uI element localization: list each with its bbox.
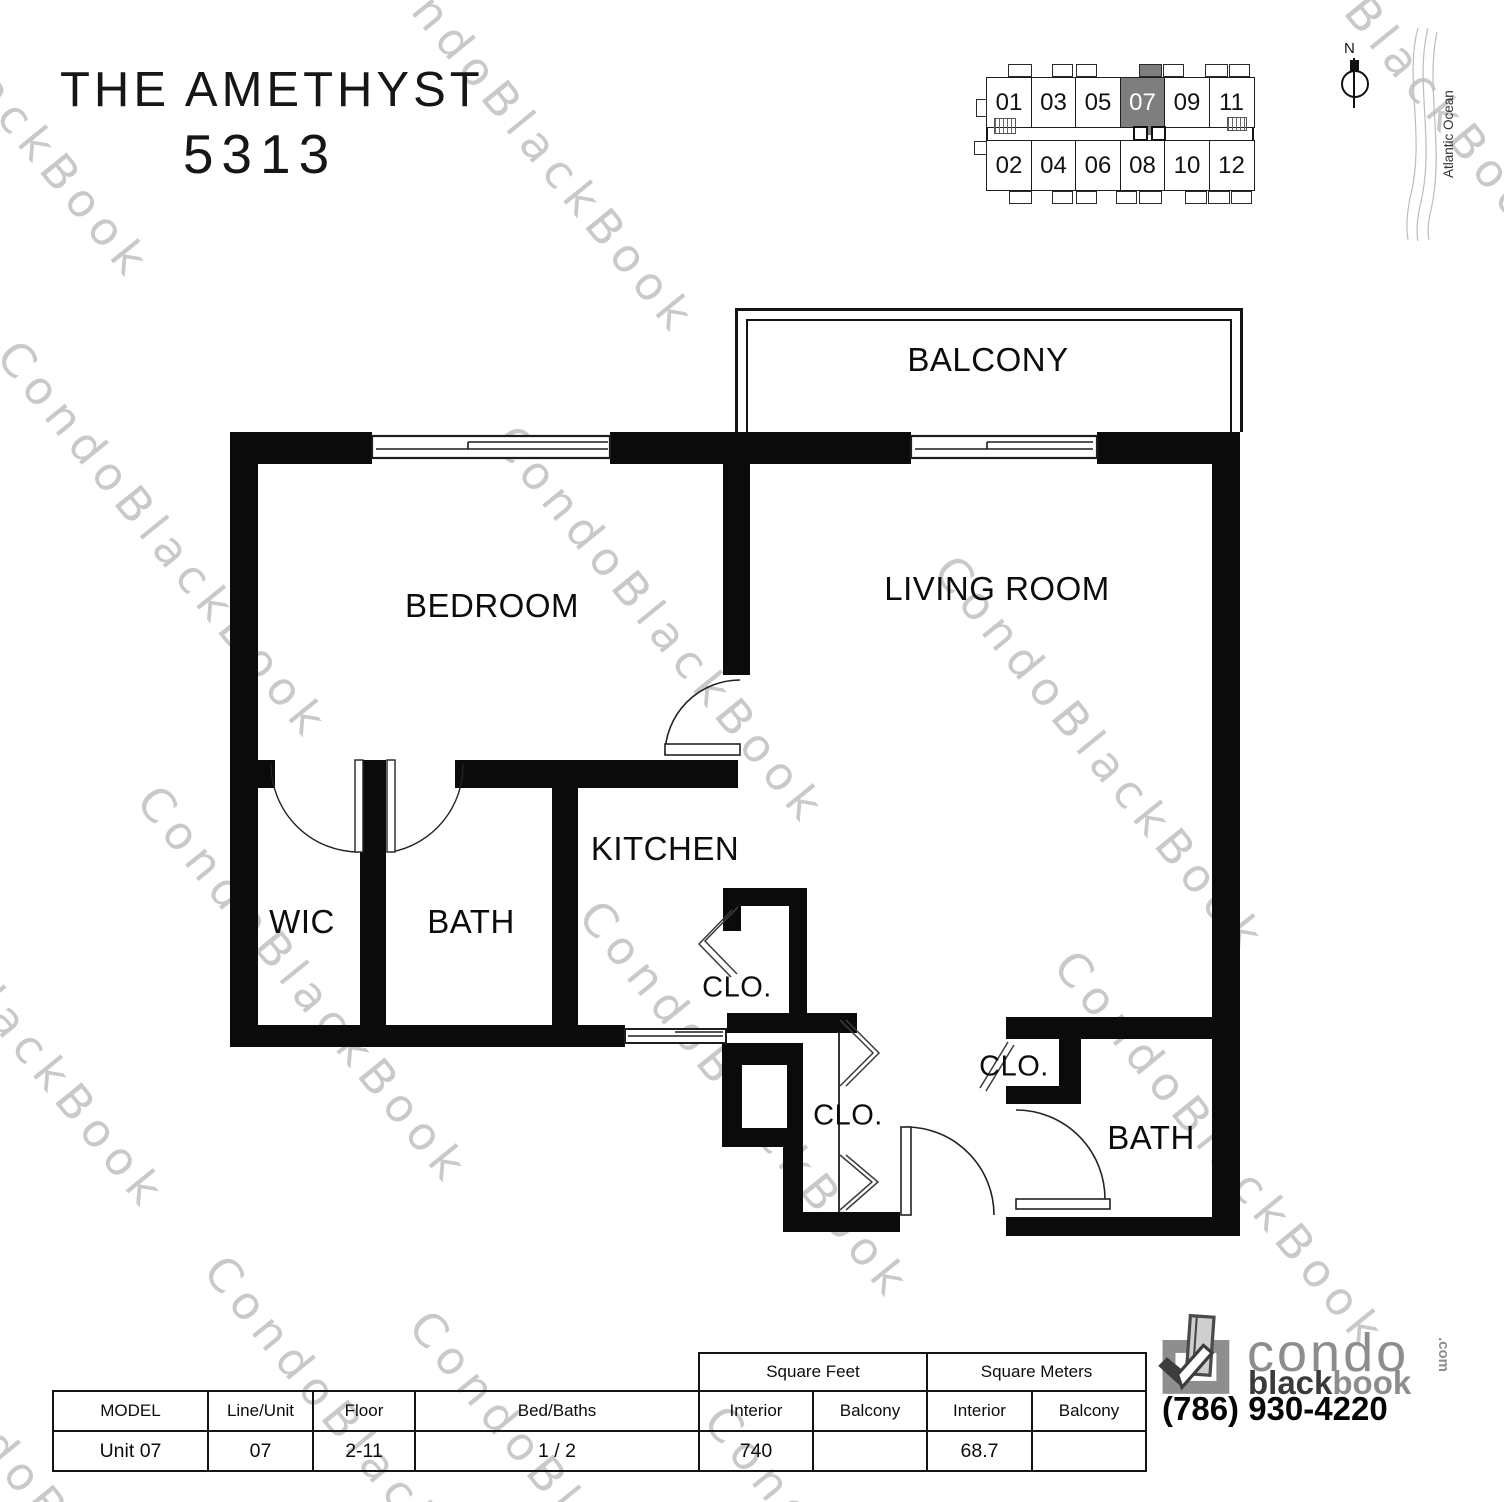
- table-group-header-row: Square Feet Square Meters: [53, 1353, 1146, 1391]
- window-kitchen: [625, 1029, 726, 1043]
- door-arc-wic: [271, 764, 359, 852]
- floor-plan: BALCONY BEDROOM LIVING ROOM KITCHEN WIC …: [230, 308, 1240, 1238]
- wall: [230, 1025, 625, 1047]
- room-label-bedroom: BEDROOM: [405, 587, 579, 625]
- header-sm-interior: Interior: [927, 1391, 1032, 1431]
- cell-sf-balcony: [813, 1431, 927, 1471]
- door-leaf-bedroom: [665, 744, 740, 755]
- cell-floor: 2-11: [313, 1431, 415, 1471]
- door-arc-bath1: [391, 764, 463, 852]
- door-arc-bedroom: [665, 680, 740, 755]
- cell-line-unit: 07: [208, 1431, 313, 1471]
- building-name: THE AMETHYST: [60, 62, 460, 118]
- key-balcony-tab: [1008, 64, 1032, 77]
- room-label-living-room: LIVING ROOM: [884, 570, 1110, 608]
- key-unit-08: 08: [1120, 140, 1166, 191]
- key-stairs-icon: [1227, 117, 1247, 131]
- group-header-square-meters: Square Meters: [927, 1353, 1146, 1391]
- key-unit-12: 12: [1209, 140, 1255, 191]
- cell-sf-interior: 740: [699, 1431, 813, 1471]
- building-number: 5313: [60, 122, 460, 186]
- key-left-protrusion: [974, 141, 987, 155]
- north-label: N: [1344, 40, 1355, 57]
- brand-text-dotcom: .com: [1435, 1337, 1452, 1372]
- key-elevator-icon: [1151, 126, 1166, 141]
- wall: [723, 888, 741, 931]
- header-sf-balcony: Balcony: [813, 1391, 927, 1431]
- cell-sm-interior: 68.7: [927, 1431, 1032, 1471]
- key-balcony-tab: [1076, 64, 1097, 77]
- key-unit-05: 05: [1075, 77, 1121, 128]
- key-balcony-tab: [1009, 191, 1032, 204]
- wall: [1006, 1086, 1081, 1104]
- key-unit-07-highlighted: 07: [1120, 77, 1166, 128]
- door-leaf-bath1: [387, 760, 395, 852]
- table-header-row: MODEL Line/Unit Floor Bed/Baths Interior…: [53, 1391, 1146, 1431]
- room-label-closet-kitchen: CLO.: [702, 972, 772, 1005]
- shoreline-waves: [1390, 28, 1470, 243]
- room-label-closet-bath: CLO.: [979, 1051, 1049, 1084]
- compass-icon: [1341, 70, 1369, 98]
- header-floor: Floor: [313, 1391, 415, 1431]
- key-balcony-tab-highlighted: [1139, 64, 1162, 77]
- key-balcony-tab: [1052, 191, 1073, 204]
- room-label-kitchen: KITCHEN: [591, 830, 739, 868]
- wall: [230, 760, 275, 788]
- entry-closet-interior: [742, 1065, 787, 1128]
- wall: [789, 888, 807, 1013]
- key-balcony-tab: [1205, 64, 1228, 77]
- key-unit-04: 04: [1031, 140, 1077, 191]
- key-unit-06: 06: [1075, 140, 1121, 191]
- cell-sm-balcony: [1032, 1431, 1146, 1471]
- cell-model: Unit 07: [53, 1431, 208, 1471]
- key-balcony-tab: [1116, 191, 1137, 204]
- wall: [455, 760, 738, 788]
- wall: [1006, 1217, 1240, 1236]
- key-balcony-tab: [1052, 64, 1073, 77]
- wall: [723, 432, 750, 675]
- room-label-wic: WIC: [269, 903, 335, 941]
- wall: [1212, 432, 1240, 1236]
- wall: [552, 760, 578, 1025]
- key-unit-10: 10: [1164, 140, 1210, 191]
- key-unit-02: 02: [986, 140, 1032, 191]
- header-sf-interior: Interior: [699, 1391, 813, 1431]
- group-header-square-feet: Square Feet: [699, 1353, 927, 1391]
- wall: [360, 760, 386, 1025]
- cell-bed-baths: 1 / 2: [415, 1431, 699, 1471]
- wall: [610, 432, 911, 464]
- header-bed-baths: Bed/Baths: [415, 1391, 699, 1431]
- key-balcony-tab: [1231, 191, 1252, 204]
- window-bedroom: [372, 436, 610, 458]
- key-balcony-tab: [1185, 191, 1207, 204]
- room-label-closet-entry: CLO.: [813, 1100, 883, 1133]
- key-balcony-tab: [1139, 191, 1162, 204]
- room-label-balcony: BALCONY: [907, 341, 1068, 379]
- key-stairs-icon: [994, 118, 1016, 134]
- phone-number: (786) 930-4220: [1162, 1390, 1388, 1428]
- table-data-row: Unit 07 07 2-11 1 / 2 740 68.7: [53, 1431, 1146, 1471]
- key-elevator-icon: [1133, 126, 1148, 141]
- unit-spec-table: Square Feet Square Meters MODEL Line/Uni…: [52, 1352, 1147, 1472]
- door-leaf-bath2: [1016, 1199, 1110, 1209]
- room-label-bath1: BATH: [427, 903, 515, 941]
- wall: [1006, 1017, 1234, 1039]
- header-line-unit: Line/Unit: [208, 1391, 313, 1431]
- wall: [230, 432, 258, 1047]
- window-living-slider: [911, 436, 1097, 458]
- door-leaf-entry: [901, 1127, 911, 1215]
- ocean-label: Atlantic Ocean: [1441, 90, 1456, 178]
- key-balcony-tab: [1208, 191, 1230, 204]
- title-block: THE AMETHYST 5313: [60, 62, 460, 186]
- door-arc-bath2: [1016, 1110, 1105, 1199]
- header-model: MODEL: [53, 1391, 208, 1431]
- key-balcony-tab: [1163, 64, 1184, 77]
- floor-plan-page: CondoBlackBook CondoBlackBook CondoBlack…: [0, 0, 1504, 1502]
- header-sm-balcony: Balcony: [1032, 1391, 1146, 1431]
- key-balcony-tab: [1076, 191, 1097, 204]
- watermark: CondoBlackBook: [0, 800, 178, 1221]
- key-balcony-tab: [1229, 64, 1250, 77]
- room-label-bath2: BATH: [1107, 1119, 1195, 1157]
- condoblackbook-logo-icon: [1152, 1312, 1242, 1396]
- bifold-door-lower: [840, 1155, 878, 1210]
- door-arc-entry: [906, 1127, 994, 1215]
- key-unit-09: 09: [1164, 77, 1210, 128]
- table-empty-space: [53, 1353, 699, 1391]
- key-unit-03: 03: [1031, 77, 1077, 128]
- building-key-plan: 01 03 05 07 09 11 02 04 06 08 10 12: [986, 63, 1254, 205]
- key-left-protrusion: [976, 99, 987, 117]
- wall: [727, 1013, 857, 1033]
- wall: [783, 1147, 803, 1232]
